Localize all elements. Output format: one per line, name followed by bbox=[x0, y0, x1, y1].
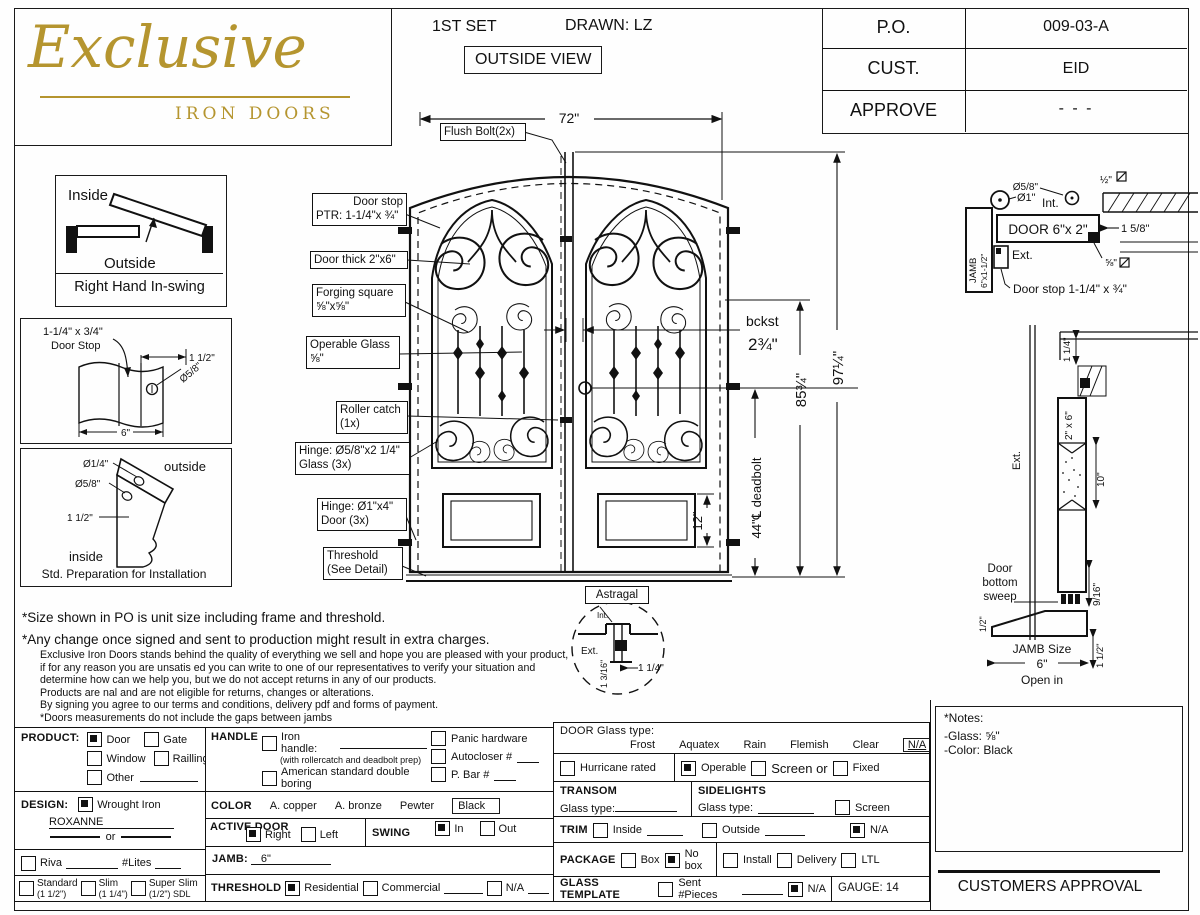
super-slim-label: Super Slim(1/2") SDL bbox=[149, 878, 198, 900]
label-door-thick: Door thick 2"x6" bbox=[310, 251, 408, 269]
glass-type-cell: DOOR Glass type: Frost Aquatex Rain Flem… bbox=[553, 722, 930, 755]
checkbox-sidelights-screen[interactable] bbox=[835, 800, 850, 815]
panic-label: Panic hardware bbox=[451, 733, 527, 745]
product-other-label: Other bbox=[106, 772, 134, 784]
color-pewter-label[interactable]: Pewter bbox=[400, 800, 434, 812]
glass-flemish-label[interactable]: Flemish bbox=[790, 739, 829, 751]
approval-signature-line[interactable] bbox=[938, 870, 1160, 873]
section-door-dim: 2" x 6" bbox=[1064, 411, 1075, 440]
head-jamb-label1: JAMB bbox=[968, 258, 979, 283]
checkbox-active-left[interactable] bbox=[301, 827, 316, 842]
notes-box-title: *Notes: bbox=[944, 711, 1174, 725]
head-door-label: DOOR 6"x 2" bbox=[1008, 222, 1088, 237]
label-hinge-door-line2: Door (3x) bbox=[321, 514, 403, 528]
riva-label: Riva bbox=[40, 857, 62, 869]
color-copper-label[interactable]: A. copper bbox=[270, 800, 317, 812]
checkbox-box[interactable] bbox=[621, 853, 636, 868]
drawn-label: DRAWN: LZ bbox=[565, 17, 652, 35]
section-jamb-size2: 6" bbox=[1037, 657, 1048, 671]
threshold-label: THRESHOLD bbox=[211, 882, 281, 894]
riva-field[interactable] bbox=[66, 857, 118, 869]
checkbox-american-boring[interactable] bbox=[262, 771, 277, 786]
label-forging-line2: ⅝"x⅝" bbox=[316, 300, 402, 314]
iron-handle-field[interactable] bbox=[340, 737, 427, 749]
glass-template-label: GLASS TEMPLATE bbox=[560, 877, 653, 901]
install-dim1: Ø1/4" bbox=[83, 459, 109, 470]
autocloser-label: Autocloser # bbox=[451, 751, 512, 763]
glass-clear-label[interactable]: Clear bbox=[853, 739, 879, 751]
doorstop-line1: 1-1/4" x 3/4" bbox=[43, 326, 103, 338]
iron-handle-label: Iron handle: bbox=[281, 731, 336, 755]
section-glass-dim: 10" bbox=[1096, 472, 1107, 487]
trim-outside-label: Outside bbox=[722, 824, 760, 836]
install-outside-label: outside bbox=[164, 459, 206, 474]
swing-cell: SWING In Out bbox=[365, 818, 555, 848]
notes-box-glass: -Glass: ⅝" bbox=[944, 729, 1174, 743]
set-label: 1ST SET bbox=[432, 18, 497, 36]
standard-label: Standard(1 1/2") bbox=[37, 878, 78, 900]
commercial-label: Commercial bbox=[382, 882, 441, 894]
notes-box-color: -Color: Black bbox=[944, 743, 1174, 757]
gauge-cell: GAUGE: 14 bbox=[831, 876, 930, 902]
checkbox-ltl[interactable] bbox=[841, 853, 856, 868]
checkbox-riva[interactable] bbox=[21, 856, 36, 871]
label-threshold-line1: Threshold bbox=[327, 549, 399, 563]
checkbox-iron-handle[interactable] bbox=[262, 736, 277, 751]
label-operable: Operable Glass ⅝" bbox=[306, 336, 400, 369]
label-hinge-glass-line2: Glass (3x) bbox=[299, 458, 406, 472]
dim-deadbolt: 44"℄ deadbolt bbox=[749, 457, 764, 538]
swing-label: SWING bbox=[372, 827, 410, 839]
checkbox-design-wrought[interactable] bbox=[78, 797, 93, 812]
head-half-label: ½" bbox=[1100, 175, 1112, 186]
jamb-cell: JAMB: 6" bbox=[205, 846, 555, 876]
label-threshold: Threshold (See Detail) bbox=[323, 547, 403, 580]
glass-na-selected[interactable]: N/A bbox=[903, 738, 931, 752]
sidelights-glass-type-label: Glass type: bbox=[698, 802, 753, 814]
product-other-field[interactable] bbox=[140, 770, 198, 782]
label-forging: Forging square ⅝"x⅝" bbox=[312, 284, 406, 317]
swing-caption: Right Hand In-swing bbox=[56, 279, 223, 295]
active-door-cell: ACTIVE DOOR Right Left bbox=[205, 818, 367, 848]
checkbox-product-door[interactable] bbox=[87, 732, 102, 747]
checkbox-screen[interactable] bbox=[751, 761, 766, 776]
checkbox-swing-out[interactable] bbox=[480, 821, 495, 836]
note-line1: *Size shown in PO is unit size including… bbox=[22, 610, 642, 625]
trim-label: TRIM bbox=[560, 824, 588, 836]
jamb-field[interactable]: 6" bbox=[251, 853, 331, 865]
jamb-label: JAMB: bbox=[212, 853, 248, 865]
threshold-cell: THRESHOLD Residential Commercial N/A bbox=[205, 874, 555, 902]
section-sweep-dim: 9/16" bbox=[1092, 583, 1103, 606]
checkbox-sent-pieces[interactable] bbox=[658, 882, 673, 897]
residential-label: Residential bbox=[304, 882, 358, 894]
label-door-stop: Door stop PTR: 1-1/4"x ¾" bbox=[312, 193, 407, 226]
checkbox-product-other[interactable] bbox=[87, 770, 102, 785]
note-body-5: By signing you agree to our terms and co… bbox=[40, 699, 642, 712]
checkbox-pbar[interactable] bbox=[431, 767, 446, 782]
notes-box: *Notes: -Glass: ⅝" -Color: Black bbox=[935, 706, 1183, 852]
install-detail-box: Ø1/4" Ø5/8" 1 1/2" outside inside Std. P… bbox=[20, 448, 232, 587]
checkbox-operable[interactable] bbox=[681, 761, 696, 776]
po-label: P.O. bbox=[822, 17, 965, 38]
dim-panel: 12" bbox=[690, 511, 705, 530]
fixed-label: Fixed bbox=[853, 762, 880, 774]
doorstop-line2: Door Stop bbox=[51, 340, 101, 352]
pbar-label: P. Bar # bbox=[451, 769, 489, 781]
design-cell: DESIGN: Wrought Iron ROXANNE or bbox=[14, 791, 207, 851]
section-sweep-label2: bottom bbox=[982, 577, 1017, 589]
checkbox-trim-outside[interactable] bbox=[702, 823, 717, 838]
note-line2: *Any change once signed and sent to prod… bbox=[22, 632, 642, 647]
jamb-value: 6" bbox=[261, 853, 271, 865]
dim-backset1: bckst bbox=[746, 313, 779, 329]
package-label: PACKAGE bbox=[560, 854, 616, 866]
head-hinge-dia: Ø1" bbox=[1017, 192, 1036, 204]
checkbox-commercial[interactable] bbox=[363, 881, 378, 896]
checkbox-delivery[interactable] bbox=[777, 853, 792, 868]
doorstop-dim-hole: Ø5/8" bbox=[178, 360, 205, 385]
checkbox-product-gate[interactable] bbox=[144, 732, 159, 747]
checkbox-nobox[interactable] bbox=[665, 853, 680, 868]
cust-value: EID bbox=[965, 60, 1187, 78]
checkbox-swing-in[interactable] bbox=[435, 821, 450, 836]
checkbox-trim-na[interactable] bbox=[850, 823, 865, 838]
color-cell: COLOR A. copper A. bronze Pewter Black bbox=[205, 791, 555, 820]
section-jamb-size1: JAMB Size bbox=[1013, 642, 1072, 656]
head-int-label: Int. bbox=[1042, 196, 1059, 210]
label-roller-line1: Roller catch bbox=[340, 403, 404, 417]
swing-in-label: In bbox=[454, 823, 463, 835]
po-value: 009-03-A bbox=[965, 18, 1187, 36]
checkbox-panic[interactable] bbox=[431, 731, 446, 746]
active-right-label: Right bbox=[265, 829, 291, 841]
sidelights-glass-type-field[interactable] bbox=[758, 802, 814, 814]
label-roller: Roller catch (1x) bbox=[336, 401, 408, 434]
cust-label: CUST. bbox=[822, 58, 965, 79]
label-flush-bolt: Flush Bolt(2x) bbox=[440, 123, 526, 141]
label-operable-line2: ⅝" bbox=[310, 352, 396, 366]
head-seal-label: ⅝" bbox=[1105, 258, 1117, 269]
color-black-selected[interactable]: Black bbox=[452, 798, 500, 814]
doorstop-detail-diagram: 1-1/4" x 3/4" Door Stop 1 1/2" Ø5/8" 6" bbox=[21, 319, 228, 440]
label-hinge-door: Hinge: Ø1"x4" Door (3x) bbox=[317, 498, 407, 531]
trim-inside-field[interactable] bbox=[647, 824, 683, 836]
product-label: PRODUCT: bbox=[21, 732, 79, 785]
swing-diagram: Inside Outside bbox=[56, 176, 223, 273]
install-label: Install bbox=[743, 854, 772, 866]
design-or-label: or bbox=[106, 831, 116, 843]
sdl-cell: Standard(1 1/2") Slim(1 1/4") Super Slim… bbox=[14, 875, 207, 902]
label-hinge-door-line1: Hinge: Ø1"x4" bbox=[321, 500, 403, 514]
dim-height-door: 85¾" bbox=[793, 373, 810, 408]
trim-na-label: N/A bbox=[870, 824, 888, 836]
dim-backset2: 2¾" bbox=[748, 335, 778, 354]
label-roller-line2: (1x) bbox=[340, 417, 404, 431]
install-caption: Std. Preparation for Installation bbox=[42, 567, 207, 581]
template-na-label: N/A bbox=[808, 883, 826, 895]
head-peep-label: Ø5/8" bbox=[1013, 182, 1039, 193]
transom-glass-type-field[interactable] bbox=[615, 800, 677, 812]
swing-box: Inside Outside Right Hand In-swing bbox=[55, 175, 227, 307]
box-label: Box bbox=[641, 854, 660, 866]
riva-cell: Riva #Lites bbox=[14, 849, 207, 877]
product-window-label: Window bbox=[106, 753, 145, 765]
right-details: JAMB 6"x1-1/2" Ø1" Int. DOOR 6"x 2" Ø5/8… bbox=[955, 160, 1200, 690]
head-jamb-label2: 6"x1-1/2" bbox=[979, 254, 989, 288]
checkbox-install[interactable] bbox=[723, 853, 738, 868]
threshold-na-field[interactable] bbox=[528, 882, 549, 894]
glass-template-cell: GLASS TEMPLATE Sent #Pieces N/A bbox=[553, 876, 833, 902]
view-label-box: OUTSIDE VIEW bbox=[464, 46, 602, 74]
section-half-dim: 1/2" bbox=[978, 616, 988, 632]
head-door-stop-label: Door stop 1-1/4" x ¾" bbox=[1013, 282, 1127, 296]
head-dim: 1 5/8" bbox=[1121, 223, 1149, 235]
active-left-label: Left bbox=[320, 829, 338, 841]
doorstop-dim-width: 6" bbox=[121, 428, 131, 439]
note-body-6: *Doors measurements do not include the g… bbox=[40, 712, 642, 725]
checkbox-standard[interactable] bbox=[19, 881, 34, 896]
doorstop-dim-height: 1 1/2" bbox=[189, 353, 215, 364]
delivery-label: Delivery bbox=[797, 854, 837, 866]
checkbox-hurricane[interactable] bbox=[560, 761, 575, 776]
install-dim2: Ø5/8" bbox=[75, 479, 101, 490]
label-door-stop-line2: PTR: 1-1/4"x ¾" bbox=[316, 209, 403, 223]
checkbox-residential[interactable] bbox=[285, 881, 300, 896]
design-name-value: ROXANNE bbox=[49, 816, 103, 828]
note-body-3: determine how can we help you, but we do… bbox=[40, 674, 642, 687]
checkbox-threshold-na[interactable] bbox=[487, 881, 502, 896]
package-cell: PACKAGE Box No box bbox=[553, 842, 718, 878]
hurricane-cell: Hurricane rated bbox=[553, 753, 676, 783]
screen-or-label: Screen or bbox=[771, 761, 827, 776]
label-forging-line1: Forging square bbox=[316, 286, 402, 300]
riva-lites-label: #Lites bbox=[122, 857, 151, 869]
glass-frost-label[interactable]: Frost bbox=[630, 739, 655, 751]
sidelights-screen-label: Screen bbox=[855, 802, 890, 814]
operable-label: Operable bbox=[701, 762, 746, 774]
product-gate-label: Gate bbox=[163, 734, 187, 746]
sent-pieces-field[interactable] bbox=[742, 883, 782, 895]
design-name-field[interactable]: ROXANNE bbox=[49, 816, 174, 829]
logo-underline bbox=[40, 96, 350, 98]
trim-inside-label: Inside bbox=[613, 824, 642, 836]
design-label: DESIGN: bbox=[21, 799, 68, 811]
operable-cell: Operable Screen or Fixed bbox=[674, 753, 930, 783]
label-threshold-line2: (See Detail) bbox=[327, 563, 399, 577]
logo-script: Exclusive bbox=[28, 18, 307, 76]
product-railling-label: Railling bbox=[173, 753, 209, 765]
color-bronze-label[interactable]: A. bronze bbox=[335, 800, 382, 812]
trim-cell: TRIM Inside Outside N/A bbox=[553, 816, 930, 844]
sidelights-cell: SIDELIGHTS Glass type: Screen bbox=[691, 781, 930, 818]
checkbox-fixed[interactable] bbox=[833, 761, 848, 776]
checkbox-product-railling[interactable] bbox=[154, 751, 169, 766]
glass-type-label: DOOR Glass type: bbox=[560, 725, 923, 737]
transom-cell: TRANSOM Glass type: bbox=[553, 781, 693, 818]
autocloser-field[interactable] bbox=[517, 751, 539, 763]
checkbox-trim-inside[interactable] bbox=[593, 823, 608, 838]
dim-width: 72" bbox=[559, 110, 580, 126]
head-ext-label: Ext. bbox=[1012, 248, 1033, 262]
glass-aquatex-label[interactable]: Aquatex bbox=[679, 739, 719, 751]
section-ext-label: Ext. bbox=[1011, 451, 1023, 470]
ltl-label: LTL bbox=[861, 854, 879, 866]
sent-pieces-label: Sent #Pieces bbox=[678, 877, 737, 901]
checkbox-slim[interactable] bbox=[81, 881, 96, 896]
approve-value: - - - bbox=[965, 100, 1187, 118]
pbar-field[interactable] bbox=[494, 769, 516, 781]
threshold-na-label: N/A bbox=[506, 882, 524, 894]
section-sweep-label1: Door bbox=[988, 563, 1013, 575]
section-top-dim: 1 1/4" bbox=[1062, 337, 1073, 362]
note-body-4: Products are nal and are not eligible fo… bbox=[40, 687, 642, 700]
color-label: COLOR bbox=[211, 800, 252, 812]
doorstop-detail-box: 1-1/4" x 3/4" Door Stop 1 1/2" Ø5/8" 6" bbox=[20, 318, 232, 444]
package-ship-cell: Install Delivery LTL bbox=[716, 842, 930, 878]
label-operable-line1: Operable Glass bbox=[310, 338, 396, 352]
section-threshold-h: 1 1/2" bbox=[1095, 643, 1106, 668]
swing-outside-label: Outside bbox=[104, 255, 156, 272]
install-dim3: 1 1/2" bbox=[67, 513, 93, 524]
section-open-in: Open in bbox=[1021, 673, 1063, 687]
notes-block: *Size shown in PO is unit size including… bbox=[22, 610, 642, 725]
checkbox-template-na[interactable] bbox=[788, 882, 803, 897]
product-door-label: Door bbox=[106, 734, 130, 746]
checkbox-super-slim[interactable] bbox=[131, 881, 146, 896]
po-table: P.O. 009-03-A CUST. EID APPROVE - - - bbox=[822, 8, 1187, 132]
section-sweep-label3: sweep bbox=[983, 591, 1016, 603]
note-body-1: Exclusive Iron Doors stands behind the q… bbox=[40, 649, 642, 662]
install-inside-label: inside bbox=[69, 549, 103, 564]
riva-lites-field[interactable] bbox=[155, 857, 181, 869]
leaf-scrollwork bbox=[432, 200, 552, 547]
nobox-label: No box bbox=[685, 848, 711, 872]
iron-handle-note: (with rollercatch and deadbolt prep) bbox=[280, 755, 427, 765]
transom-label: TRANSOM bbox=[560, 785, 686, 797]
trim-outside-field[interactable] bbox=[765, 824, 805, 836]
hurricane-label: Hurricane rated bbox=[580, 762, 656, 774]
label-hinge-glass-line1: Hinge: Ø5/8"x2 1/4" bbox=[299, 444, 406, 458]
label-hinge-glass: Hinge: Ø5/8"x2 1/4" Glass (3x) bbox=[295, 442, 410, 475]
label-door-stop-line1: Door stop bbox=[316, 195, 403, 209]
glass-rain-label[interactable]: Rain bbox=[743, 739, 766, 751]
dim-height-unit: 97¼" bbox=[830, 351, 847, 386]
approval-label: CUSTOMERS APPROVAL bbox=[930, 878, 1170, 896]
transom-glass-type-label: Glass type: bbox=[560, 803, 615, 815]
install-detail-diagram: Ø1/4" Ø5/8" 1 1/2" outside inside Std. P… bbox=[21, 449, 228, 583]
sidelights-label: SIDELIGHTS bbox=[698, 785, 923, 797]
label-astragal: Astragal bbox=[585, 586, 649, 604]
checkbox-active-right[interactable] bbox=[246, 827, 261, 842]
swing-inside-label: Inside bbox=[68, 187, 108, 204]
handle-cell: HANDLE Iron handle: (with rollercatch an… bbox=[205, 727, 555, 793]
slim-label: Slim(1 1/4") bbox=[99, 878, 128, 900]
drawing-sheet: Exclusive IRON DOORS 1ST SET DRAWN: LZ O… bbox=[0, 0, 1200, 915]
product-cell: PRODUCT: Door Gate Window Railling Other bbox=[14, 727, 207, 793]
swing-out-label: Out bbox=[499, 823, 517, 835]
design-option-label: Wrought Iron bbox=[97, 799, 160, 811]
commercial-field[interactable] bbox=[444, 882, 482, 894]
checkbox-autocloser[interactable] bbox=[431, 749, 446, 764]
gauge-label: GAUGE: 14 bbox=[838, 882, 899, 894]
note-body-2: if for any reason you are unsatis ed you… bbox=[40, 662, 642, 675]
checkbox-product-window[interactable] bbox=[87, 751, 102, 766]
american-boring-label: American standard double boring bbox=[281, 766, 427, 790]
